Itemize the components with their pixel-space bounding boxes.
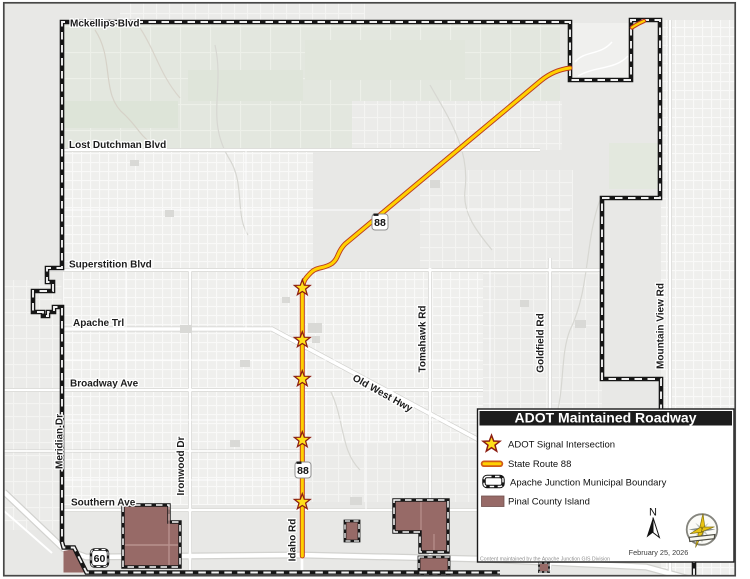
svg-text:Meridian Dr: Meridian Dr: [55, 414, 66, 469]
svg-text:60: 60: [94, 553, 106, 565]
svg-text:Pinal County Island: Pinal County Island: [508, 497, 590, 508]
svg-text:88: 88: [297, 465, 309, 477]
svg-text:Content maintained by the Apac: Content maintained by the Apache Junctio…: [480, 557, 610, 563]
svg-text:Tomahawk Rd: Tomahawk Rd: [418, 305, 429, 372]
svg-text:Idaho Rd: Idaho Rd: [288, 519, 299, 562]
svg-text:Apache Junction Municipal Boun: Apache Junction Municipal Boundary: [510, 478, 667, 489]
svg-text:N: N: [649, 507, 657, 519]
svg-text:Mckellips Blvd: Mckellips Blvd: [70, 19, 139, 30]
svg-text:February 25, 2026: February 25, 2026: [629, 548, 689, 557]
svg-text:Ironwood Dr: Ironwood Dr: [176, 436, 187, 495]
svg-text:State Route 88: State Route 88: [508, 459, 571, 470]
svg-text:Mountain View Rd: Mountain View Rd: [656, 283, 667, 369]
svg-text:Superstition Blvd: Superstition Blvd: [69, 260, 152, 271]
svg-text:Broadway Ave: Broadway Ave: [70, 379, 139, 390]
svg-text:88: 88: [374, 217, 386, 229]
svg-text:Lost Dutchman Blvd: Lost Dutchman Blvd: [69, 140, 166, 151]
svg-text:Goldfield Rd: Goldfield Rd: [536, 313, 547, 372]
svg-text:Southern Ave: Southern Ave: [71, 498, 136, 509]
svg-text:Apache Trl: Apache Trl: [73, 318, 124, 329]
svg-text:ADOT Signal Intersection: ADOT Signal Intersection: [508, 440, 615, 451]
svg-text:ADOT Maintained Roadway: ADOT Maintained Roadway: [514, 410, 696, 426]
